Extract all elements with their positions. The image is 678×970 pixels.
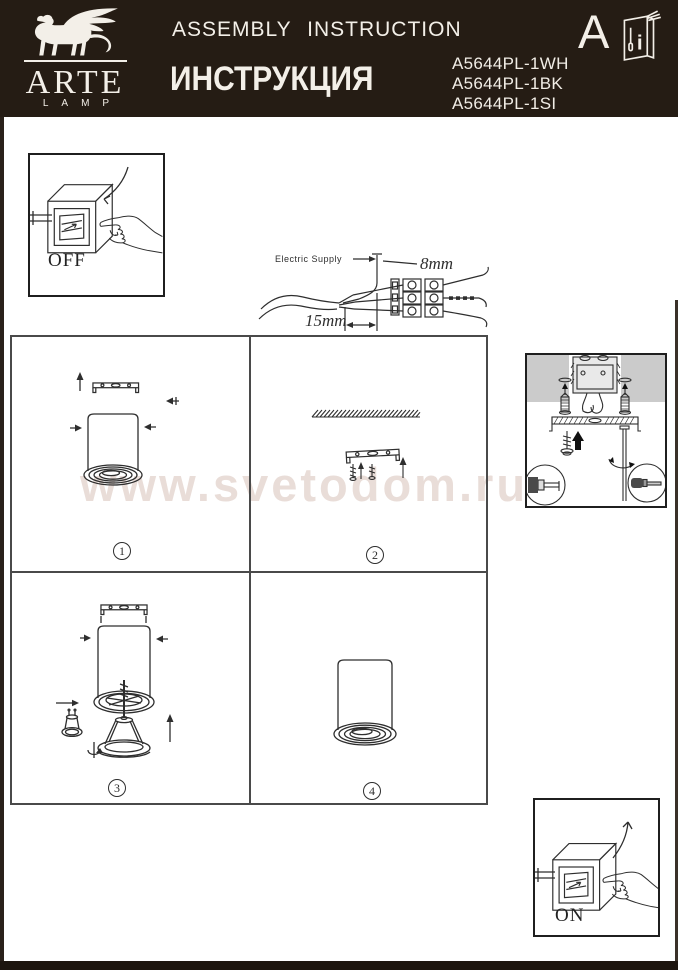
junction-box [573,357,617,393]
screwdriver-handle-icon [528,477,538,493]
info-letter: i [637,32,643,55]
product-code: A5644PL-1BK [452,74,569,94]
mounting-detail-box [525,353,667,508]
title-russian: ИНСТРУКЦИЯ [170,60,374,99]
section-letter: A [578,4,609,59]
step-4-number: 4 [363,782,381,800]
step-4-diagram [249,570,488,801]
brand-subname: LAMP [26,98,126,109]
logo-underline [24,60,127,62]
power-on-box: ON [533,798,660,937]
wire-strip-diagram: Electric Supply 8mm 15mm [255,245,490,337]
step-2-number: 2 [366,546,384,564]
off-label: OFF [48,250,86,272]
header: ARTE LAMP ASSEMBLY INSTRUCTION ИНСТРУКЦИ… [0,0,678,117]
electric-supply-label: Electric Supply [275,254,342,264]
step-1-diagram [10,335,249,571]
step-3-diagram [10,570,249,801]
lion-logo-icon [24,6,126,60]
push-up-arrow [572,431,584,441]
booklet-info-icon: i [618,8,662,62]
product-codes: A5644PL-1WH A5644PL-1BK A5644PL-1SI [452,54,569,114]
dimension-15mm: 15mm [305,311,347,330]
instruction-sheet: ARTE LAMP ASSEMBLY INSTRUCTION ИНСТРУКЦИ… [0,0,678,970]
ceiling-mounting-illustration [527,355,665,506]
product-code: A5644PL-1WH [452,54,569,74]
step-1-number: 1 [113,542,131,560]
title-english: ASSEMBLY INSTRUCTION [172,18,462,42]
product-code: A5644PL-1SI [452,94,569,114]
step-3-number: 3 [108,779,126,797]
on-label: ON [555,905,584,927]
step-2-diagram [249,335,488,571]
scan-edge-bottom [0,961,678,970]
switch-on-illustration [535,800,658,935]
switch-off-illustration [30,155,163,295]
brand-name: ARTE [22,64,128,102]
dimension-8mm: 8mm [420,254,453,273]
power-off-box: OFF [28,153,165,297]
threaded-rod [623,429,626,501]
scan-edge-left [0,117,4,970]
